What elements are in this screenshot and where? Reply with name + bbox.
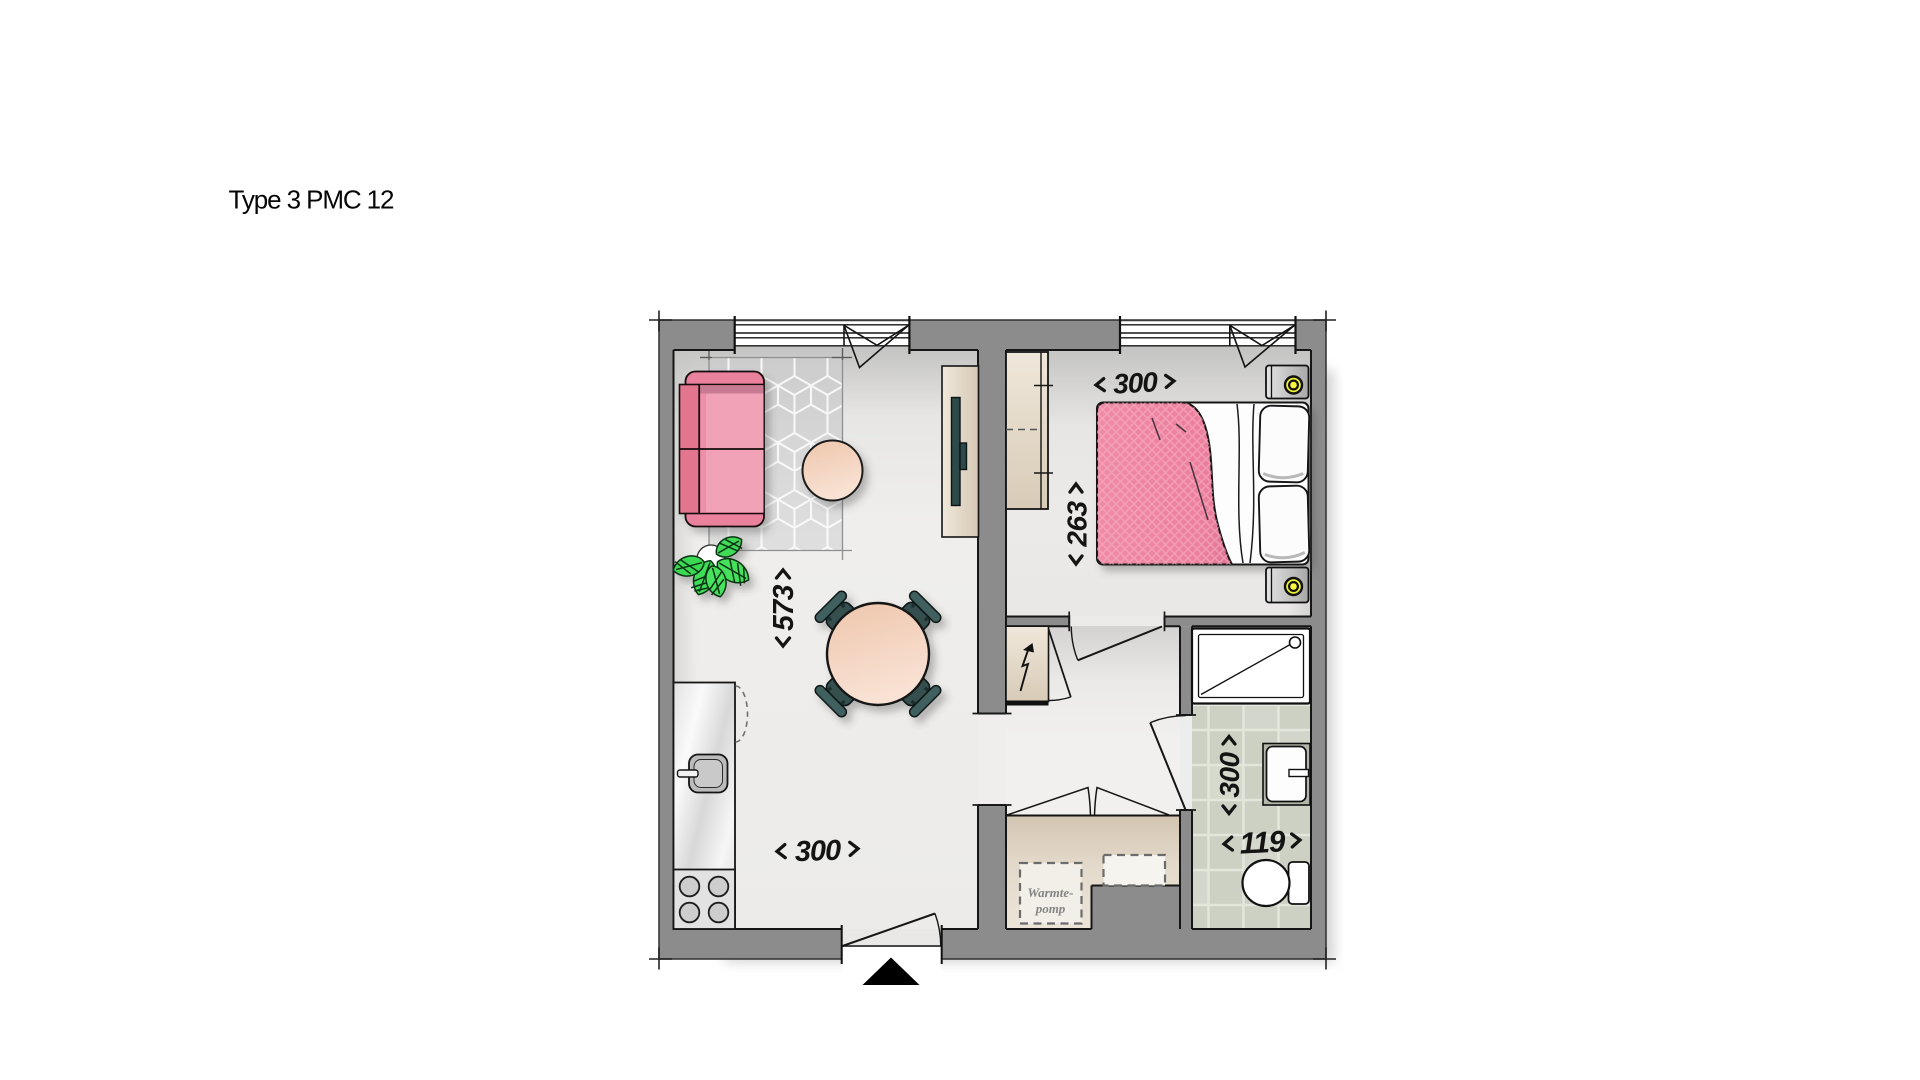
svg-text:pomp: pomp <box>1035 901 1066 916</box>
svg-text:Warmte-: Warmte- <box>1028 885 1074 900</box>
svg-text:263: 263 <box>1062 500 1093 547</box>
svg-text:Type 3 PMC 12: Type 3 PMC 12 <box>229 185 395 215</box>
svg-text:300: 300 <box>1112 366 1159 399</box>
svg-text:300: 300 <box>1214 751 1245 797</box>
svg-text:300: 300 <box>794 835 841 869</box>
svg-text:119: 119 <box>1239 825 1287 860</box>
svg-text:573: 573 <box>768 584 800 631</box>
